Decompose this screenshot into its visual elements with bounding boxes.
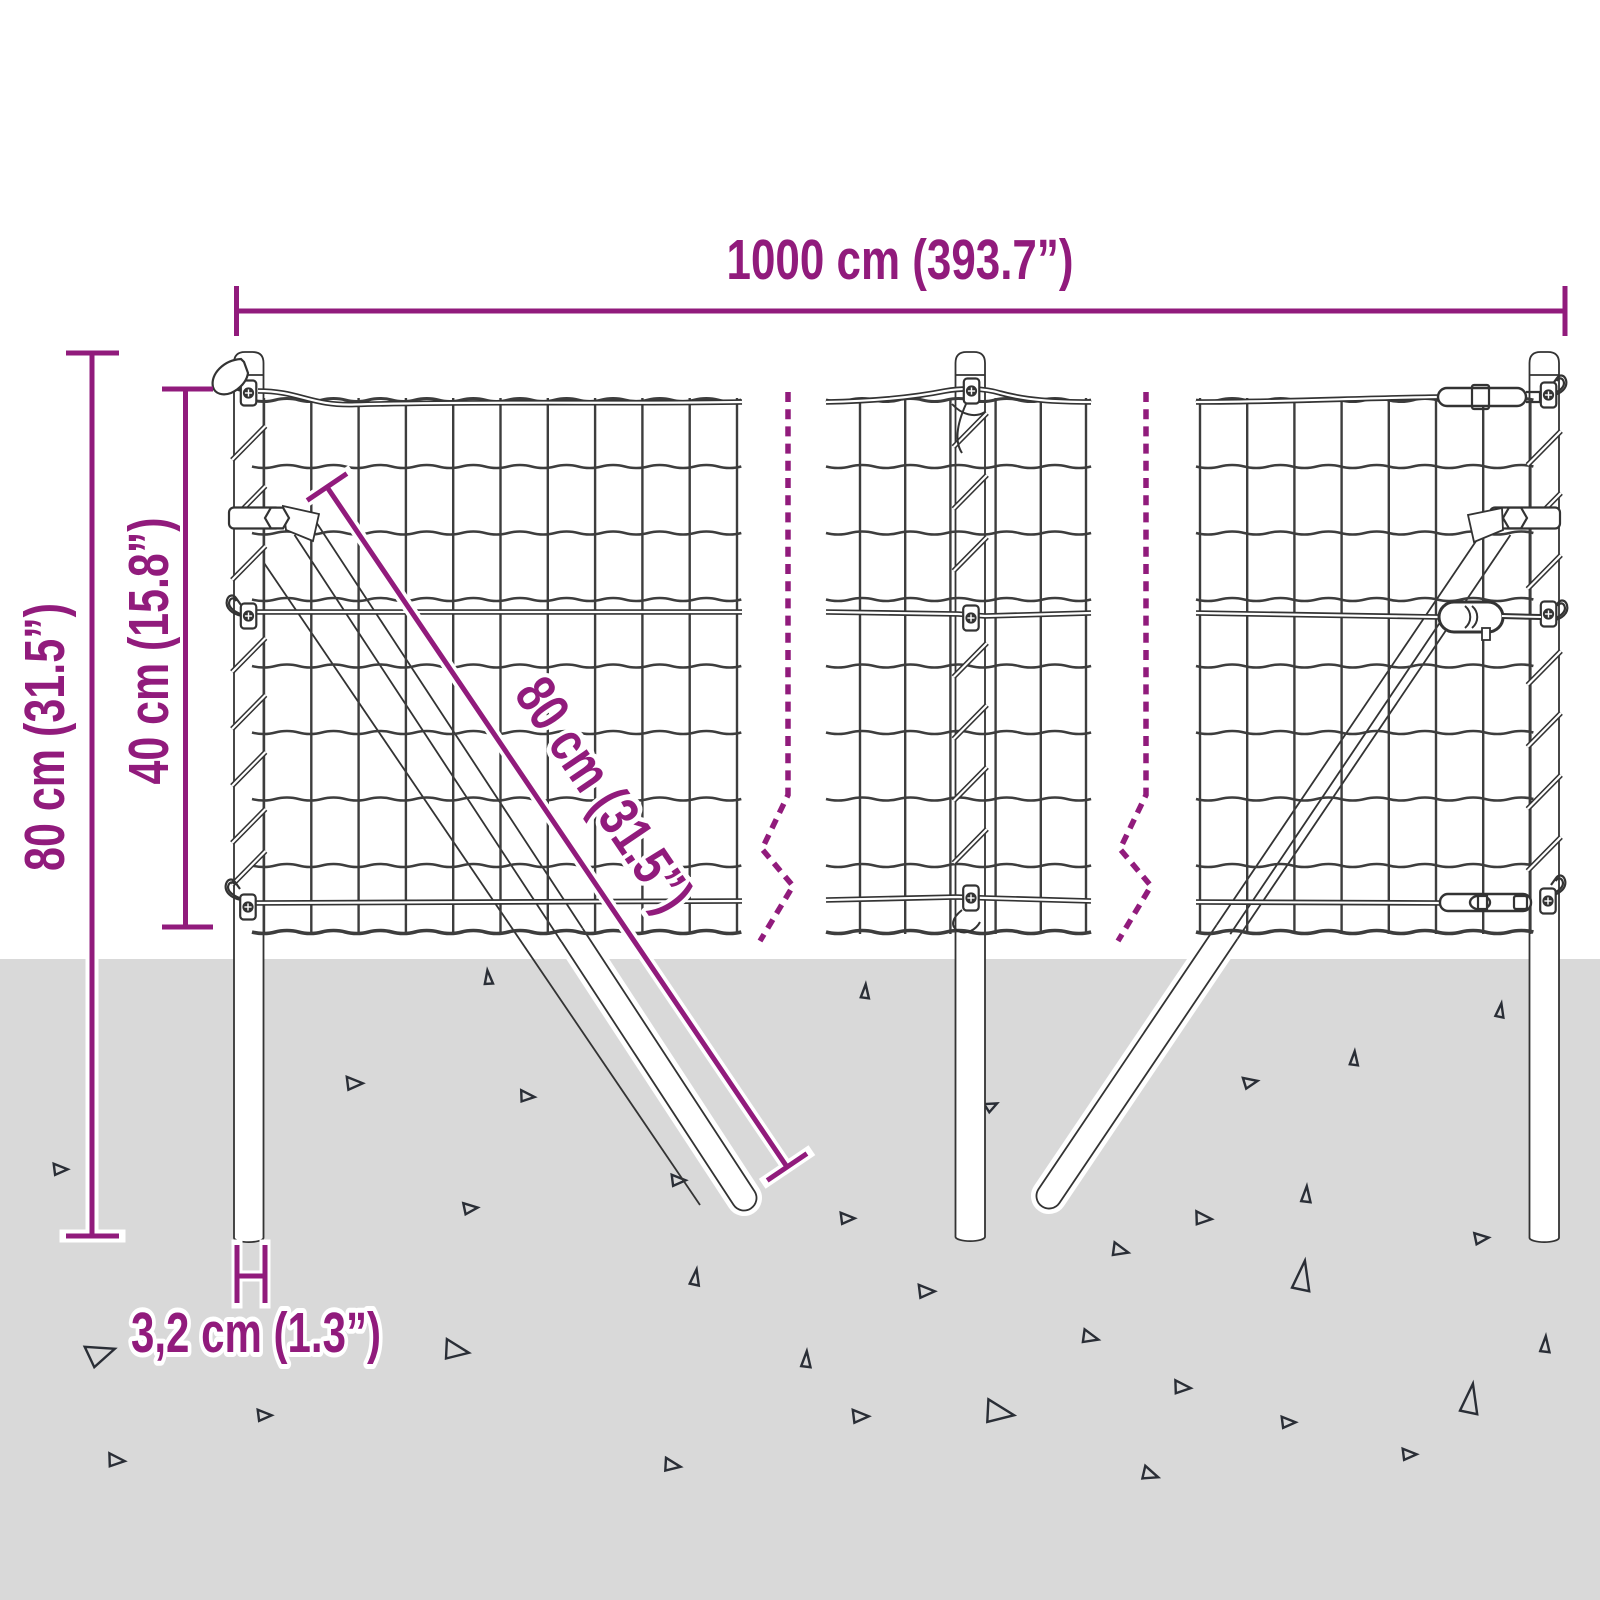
svg-text:80 cm (31.5”): 80 cm (31.5”) xyxy=(13,603,77,871)
svg-text:40 cm (15.8”): 40 cm (15.8”) xyxy=(117,518,181,785)
svg-text:1000 cm (393.7”): 1000 cm (393.7”) xyxy=(727,228,1074,292)
svg-text:3,2 cm (1.3”): 3,2 cm (1.3”) xyxy=(131,1301,381,1365)
